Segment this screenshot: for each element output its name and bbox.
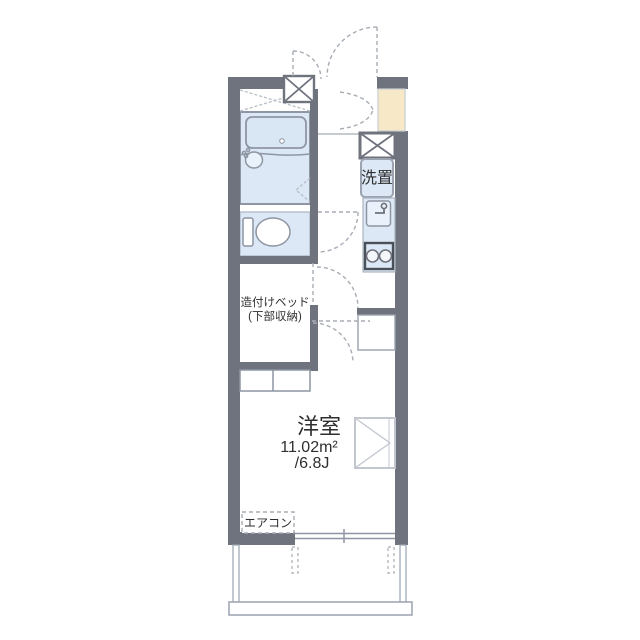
window-lines	[295, 534, 395, 539]
wall-corridor-lower	[310, 305, 318, 371]
toilet-room	[240, 212, 310, 256]
wall-left	[228, 77, 240, 545]
entrance-inner-fold-door	[340, 92, 373, 129]
toilet-bowl-icon	[256, 218, 290, 246]
bed-area: 造付けベッド (下部収納)	[240, 295, 310, 391]
floor-plan-svg: 洗置 造付けベッド (下部収納) 洋室 11.02m² /6.8J	[0, 0, 640, 640]
aircon-unit: エアコン	[242, 512, 294, 533]
wall-kitchen-stub	[357, 308, 395, 315]
balcony-rail	[229, 602, 412, 615]
aircon-label: エアコン	[244, 516, 292, 530]
pipe-space	[360, 133, 395, 158]
storage-closet-icon	[355, 418, 395, 468]
fridge-space	[358, 315, 395, 350]
balcony-partition-right	[388, 547, 394, 573]
floor-plan-page: 洗置 造付けベッド (下部収納) 洋室 11.02m² /6.8J	[0, 0, 640, 640]
kitchen	[363, 198, 395, 272]
wall-bottom-left	[228, 532, 295, 545]
bed-step-box	[240, 370, 310, 391]
balcony-support-left	[233, 545, 239, 602]
room-area-m2-label: 11.02m²	[280, 439, 338, 456]
bedroom-door-arc	[317, 267, 358, 308]
storage-chevron	[355, 418, 390, 468]
sliding-window	[295, 529, 395, 543]
balcony-partition-left	[292, 547, 298, 573]
toilet-tank-icon	[243, 218, 253, 246]
wall-top-right	[377, 77, 408, 89]
washroom-door-arc	[318, 212, 358, 252]
stove-burner-right	[380, 250, 392, 262]
bathtub-icon	[246, 117, 306, 148]
wall-right	[395, 131, 408, 545]
stove-burner-left	[367, 250, 379, 262]
bath-basin-icon	[246, 152, 263, 168]
wall-corridor-upper	[310, 89, 318, 263]
tub-drain-icon	[280, 139, 285, 144]
balcony-support-right	[400, 545, 406, 602]
room-door-arc	[313, 323, 353, 363]
unit-bath-room	[240, 90, 310, 204]
main-room: 洋室 11.02m² /6.8J エアコン	[242, 414, 395, 533]
shoe-cabinet	[378, 89, 405, 131]
wall-toilet-bottom	[240, 256, 318, 264]
balcony	[229, 545, 412, 615]
bed-label-line1: 造付けベッド	[241, 295, 310, 309]
room-area-jo-label: /6.8J	[295, 455, 330, 472]
washer-label: 洗置	[361, 169, 393, 187]
room-name-label: 洋室	[297, 414, 341, 439]
wall-top-left	[228, 77, 284, 89]
washer-area: 洗置	[361, 159, 393, 197]
bed-label-line2: (下部収納)	[248, 309, 302, 323]
entrance-door-arc	[327, 27, 377, 77]
